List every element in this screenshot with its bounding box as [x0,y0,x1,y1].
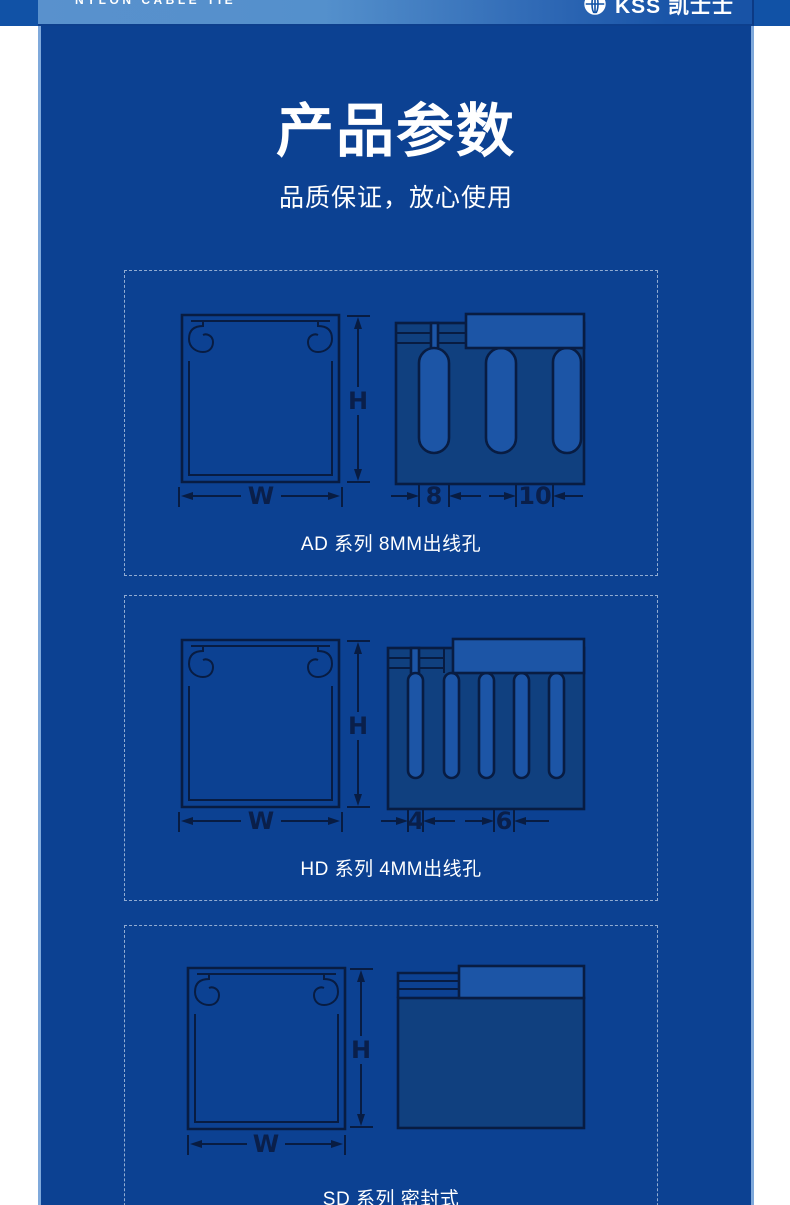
brand-tagline: NYLON CABLE TIE [75,0,236,7]
slot-pitch-label: 10 [518,482,551,510]
slot-pitch-label: 6 [496,807,513,835]
ad-series-diagram: H W [125,271,659,521]
height-label: H [348,387,368,415]
width-label: W [248,807,274,835]
slot-dimensions: 8 10 [391,482,583,510]
panel-caption: AD 系列 8MM出线孔 [125,529,657,556]
width-label: W [253,1130,279,1158]
height-dimension: H [347,641,370,807]
panel-sd-series: H W SD 系列 密封式 [124,925,658,1205]
hd-series-diagram: H W [125,596,659,846]
sd-series-diagram: H W [125,926,659,1205]
page-subtitle: 品质保证，放心使用 [41,183,751,213]
content-column: 产品参数 品质保证，放心使用 H [38,26,754,1205]
slot-width-label: 8 [426,482,443,510]
cross-section-drawing [182,640,339,807]
width-label: W [248,482,274,510]
side-view-drawing [396,314,584,484]
panel-caption: HD 系列 4MM出线孔 [125,854,657,881]
side-view-drawing [388,639,584,809]
height-label: H [348,712,368,740]
height-dimension: H [347,316,370,482]
width-dimension: W [179,807,342,835]
slot-width-label: 4 [408,807,425,835]
header-bar: NYLON CABLE TIE KSS 凯士士 [38,0,754,26]
cross-section-drawing [182,315,339,482]
panel-ad-series: H W [124,270,658,576]
slot-dimensions: 4 6 [381,807,549,835]
height-label: H [351,1036,371,1064]
page-title: 产品参数 [41,26,751,161]
height-dimension: H [350,969,373,1127]
panel-caption: SD 系列 密封式 [125,1184,657,1205]
side-view-drawing [398,966,584,1128]
globe-icon [584,0,606,15]
brand-logo: KSS 凯士士 [584,0,734,19]
top-band: NYLON CABLE TIE KSS 凯士士 [0,0,790,26]
brand-name: KSS 凯士士 [615,0,734,20]
panel-hd-series: H W [124,595,658,901]
width-dimension: W [179,482,342,510]
width-dimension: W [188,1130,345,1158]
cross-section-drawing [188,968,345,1129]
page: NYLON CABLE TIE KSS 凯士士 产品参数 品质保证，放心使用 [0,0,790,1205]
